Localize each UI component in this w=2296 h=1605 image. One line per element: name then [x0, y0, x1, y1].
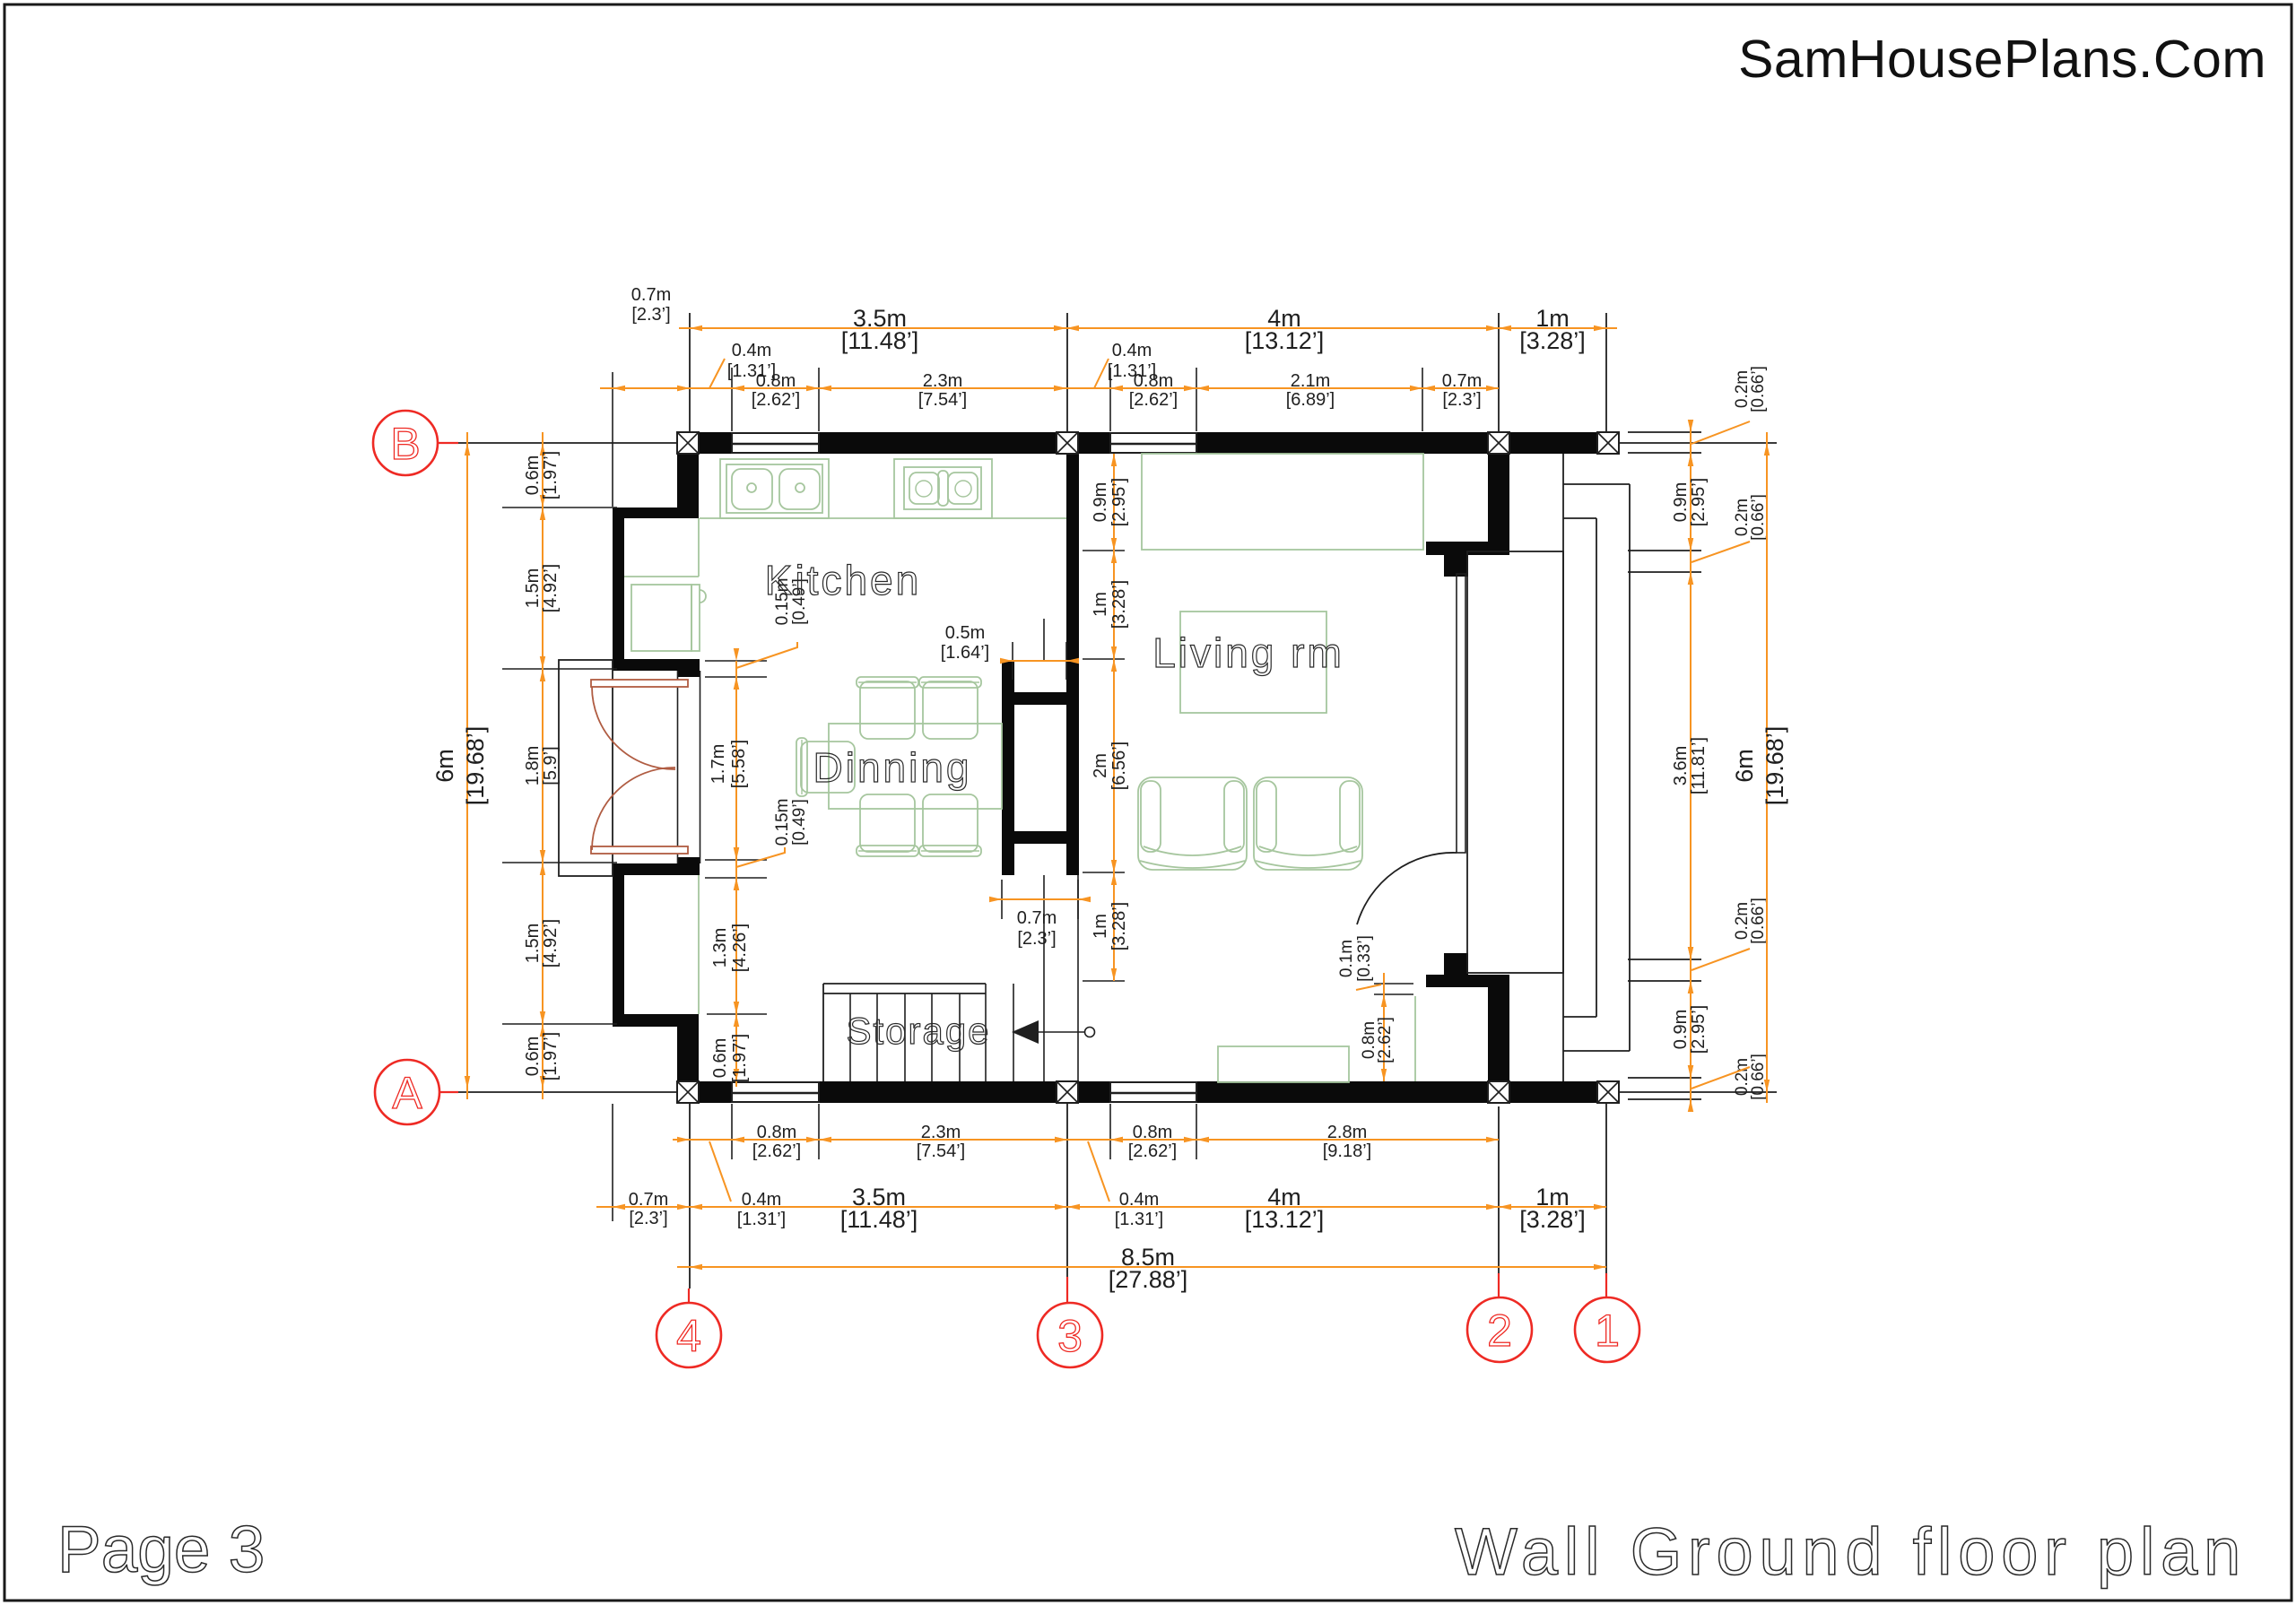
svg-text:[2.95’]: [2.95’] — [1689, 478, 1709, 526]
svg-text:[3.28’]: [3.28’] — [1109, 580, 1129, 629]
svg-text:0.8m: 0.8m — [756, 371, 796, 391]
svg-text:[7.54’]: [7.54’] — [917, 1141, 965, 1161]
svg-text:1.3m: 1.3m — [710, 928, 730, 967]
svg-text:2.1m: 2.1m — [1291, 371, 1330, 391]
svg-text:[19.68’]: [19.68’] — [462, 726, 489, 806]
svg-text:6m: 6m — [1731, 749, 1758, 783]
svg-text:[2.62’]: [2.62’] — [752, 390, 800, 410]
svg-text:0.8m: 0.8m — [1133, 1123, 1172, 1142]
svg-text:Living rm: Living rm — [1152, 629, 1344, 676]
svg-text:Page 3: Page 3 — [57, 1514, 265, 1586]
svg-text:B: B — [390, 419, 420, 469]
svg-text:1m: 1m — [1091, 914, 1110, 939]
svg-text:0.9m: 0.9m — [1091, 482, 1110, 522]
svg-text:[0.33’]: [0.33’] — [1355, 935, 1374, 982]
svg-text:[0.66’]: [0.66’] — [1749, 366, 1768, 412]
svg-text:[13.12’]: [13.12’] — [1245, 1206, 1325, 1233]
svg-text:0.4m: 0.4m — [1119, 1190, 1159, 1210]
svg-text:0.8m: 0.8m — [757, 1123, 796, 1142]
svg-text:[1.31’]: [1.31’] — [737, 1210, 786, 1229]
svg-text:[11.48’]: [11.48’] — [840, 1206, 918, 1233]
svg-text:[7.54’]: [7.54’] — [918, 390, 967, 410]
svg-text:[4.92’]: [4.92’] — [541, 564, 561, 612]
svg-text:1: 1 — [1595, 1306, 1620, 1356]
svg-text:2: 2 — [1487, 1306, 1512, 1356]
svg-text:2.3m: 2.3m — [923, 371, 962, 391]
svg-text:[6.89’]: [6.89’] — [1286, 390, 1335, 410]
svg-text:[3.28’]: [3.28’] — [1109, 902, 1129, 950]
svg-text:[2.62’]: [2.62’] — [1128, 1141, 1177, 1161]
svg-text:0.6m: 0.6m — [523, 455, 543, 495]
svg-text:[2.3’]: [2.3’] — [1017, 929, 1056, 949]
svg-text:[3.28’]: [3.28’] — [1519, 327, 1586, 354]
svg-text:0.1m: 0.1m — [1337, 940, 1356, 977]
svg-text:0.7m: 0.7m — [1442, 371, 1482, 391]
svg-text:[0.66’]: [0.66’] — [1749, 494, 1768, 541]
svg-text:0.4m: 0.4m — [732, 341, 771, 360]
svg-text:[2.62’]: [2.62’] — [1376, 1017, 1395, 1063]
svg-text:[2.3’]: [2.3’] — [629, 1209, 667, 1228]
svg-text:0.4m: 0.4m — [1112, 341, 1152, 360]
svg-text:[0.66’]: [0.66’] — [1749, 1054, 1768, 1100]
svg-text:0.9m: 0.9m — [1671, 482, 1691, 522]
svg-text:6m: 6m — [431, 749, 458, 783]
svg-text:[11.48’]: [11.48’] — [841, 327, 919, 354]
svg-text:0.6m: 0.6m — [523, 1037, 543, 1076]
svg-text:[19.68’]: [19.68’] — [1761, 726, 1788, 806]
svg-text:0.8m: 0.8m — [1134, 371, 1173, 391]
svg-text:[1.64’]: [1.64’] — [941, 643, 989, 663]
svg-text:0.7m: 0.7m — [631, 285, 671, 305]
svg-text:2.3m: 2.3m — [921, 1123, 961, 1142]
svg-text:3: 3 — [1057, 1311, 1083, 1361]
svg-text:1.5m: 1.5m — [523, 924, 543, 963]
svg-text:Kitchen: Kitchen — [765, 557, 921, 603]
svg-text:0.4m: 0.4m — [742, 1190, 781, 1210]
svg-text:0.6m: 0.6m — [710, 1038, 730, 1078]
svg-text:0.7m: 0.7m — [629, 1190, 668, 1210]
svg-text:[13.12’]: [13.12’] — [1245, 327, 1325, 354]
svg-text:A: A — [392, 1068, 422, 1118]
svg-text:Wall Ground floor plan: Wall Ground floor plan — [1455, 1514, 2247, 1589]
svg-text:0.5m: 0.5m — [945, 623, 985, 643]
svg-text:2m: 2m — [1091, 753, 1110, 778]
svg-text:1.8m: 1.8m — [523, 746, 543, 785]
svg-text:1m: 1m — [1091, 592, 1110, 617]
svg-text:Storage: Storage — [846, 1010, 990, 1052]
svg-text:4: 4 — [676, 1311, 701, 1361]
svg-text:[2.95’]: [2.95’] — [1689, 1005, 1709, 1054]
svg-text:[2.95’]: [2.95’] — [1109, 478, 1129, 526]
svg-text:[2.62’]: [2.62’] — [1129, 390, 1178, 410]
svg-text:[6.56’]: [6.56’] — [1109, 742, 1129, 790]
svg-text:[1.97’]: [1.97’] — [541, 1032, 561, 1080]
svg-text:[5.9’]: [5.9’] — [541, 746, 561, 785]
svg-text:0.7m: 0.7m — [1017, 908, 1057, 928]
svg-text:[0.66’]: [0.66’] — [1749, 898, 1768, 944]
svg-text:[5.58’]: [5.58’] — [729, 740, 749, 788]
svg-text:[2.3’]: [2.3’] — [1442, 390, 1481, 410]
svg-text:0.15m: 0.15m — [773, 799, 792, 846]
svg-text:[2.62’]: [2.62’] — [752, 1141, 801, 1161]
svg-text:[1.97’]: [1.97’] — [730, 1034, 750, 1082]
svg-text:[0.49’]: [0.49’] — [790, 799, 809, 846]
svg-text:Dinning: Dinning — [813, 744, 972, 791]
svg-text:[4.26’]: [4.26’] — [730, 924, 750, 972]
svg-text:[4.92’]: [4.92’] — [541, 919, 561, 967]
svg-text:[1.31’]: [1.31’] — [1115, 1210, 1163, 1229]
svg-text:SamHousePlans.Com: SamHousePlans.Com — [1738, 30, 2266, 89]
svg-text:2.8m: 2.8m — [1327, 1123, 1367, 1142]
svg-text:3.6m: 3.6m — [1671, 746, 1691, 785]
svg-text:[1.97’]: [1.97’] — [541, 451, 561, 499]
svg-text:[2.3’]: [2.3’] — [631, 305, 670, 325]
svg-text:[9.18’]: [9.18’] — [1323, 1141, 1371, 1161]
svg-text:1.5m: 1.5m — [523, 568, 543, 608]
svg-text:0.9m: 0.9m — [1671, 1010, 1691, 1049]
svg-text:1.7m: 1.7m — [709, 744, 728, 784]
svg-text:[27.88’]: [27.88’] — [1109, 1266, 1188, 1293]
svg-text:[3.28’]: [3.28’] — [1519, 1206, 1586, 1233]
svg-text:[11.81’]: [11.81’] — [1689, 737, 1709, 794]
